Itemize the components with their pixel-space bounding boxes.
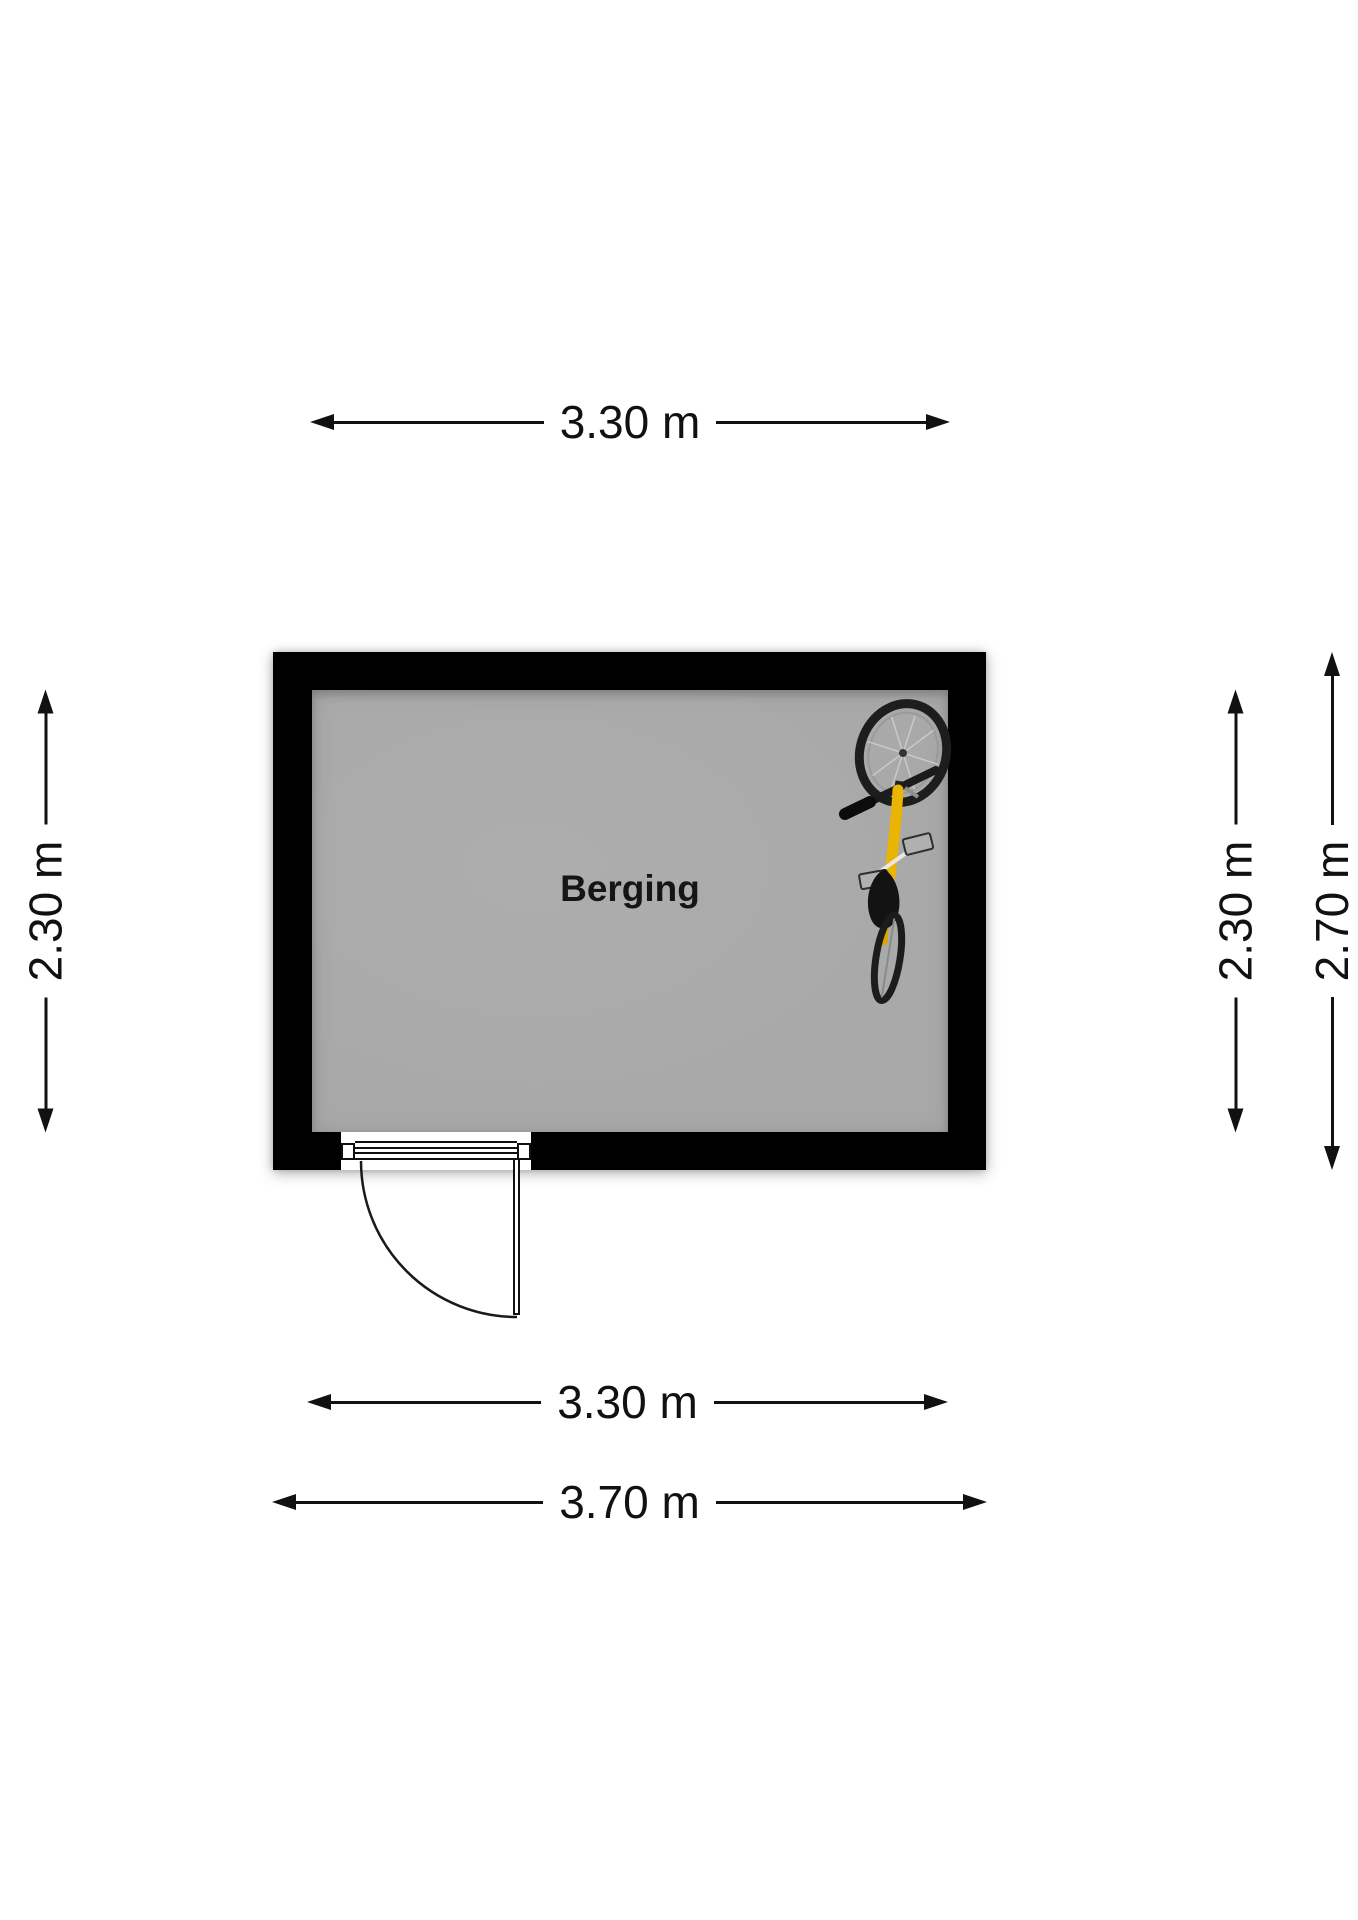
arrow-up-icon xyxy=(1324,652,1340,676)
dimension-line xyxy=(1234,710,1237,824)
arrow-right-icon xyxy=(926,414,950,430)
door-swing-arc xyxy=(361,1161,517,1317)
room-floor xyxy=(312,690,948,1132)
door-leaf xyxy=(513,1158,520,1315)
dimension-line xyxy=(1331,997,1334,1149)
dimension-label: 2.30 m xyxy=(23,825,69,998)
arrow-down-icon xyxy=(1324,1146,1340,1170)
dimension-line xyxy=(44,997,47,1111)
dimension-label: 2.30 m xyxy=(1213,825,1259,998)
dimension-label: 3.70 m xyxy=(543,1479,716,1525)
dimension-bottom-inner-width: 3.30 m xyxy=(307,1378,948,1426)
dimension-left-height: 2.30 m xyxy=(22,690,70,1133)
dimension-line xyxy=(331,421,544,424)
dimension-right-inner-height: 2.30 m xyxy=(1212,690,1260,1133)
dimension-label: 3.30 m xyxy=(541,1379,714,1425)
arrow-up-icon xyxy=(1228,689,1244,713)
dimension-line xyxy=(1331,673,1334,825)
room-label: Berging xyxy=(312,868,948,910)
dimension-right-outer-height: 2.70 m xyxy=(1308,652,1356,1170)
arrow-up-icon xyxy=(38,689,54,713)
door-threshold xyxy=(355,1141,517,1160)
dimension-line xyxy=(328,1401,541,1404)
dimension-line xyxy=(293,1501,543,1504)
arrow-down-icon xyxy=(38,1109,54,1133)
dimension-label: 3.30 m xyxy=(544,399,717,445)
floorplan-canvas: 3.30 m 2.30 m 2.30 m 2.70 m 3.30 m xyxy=(0,0,1358,1920)
dimension-line xyxy=(716,421,929,424)
dimension-top-width: 3.30 m xyxy=(310,398,950,446)
dimension-bottom-outer-width: 3.70 m xyxy=(272,1478,987,1526)
dimension-line xyxy=(44,710,47,824)
dimension-line xyxy=(714,1401,927,1404)
arrow-right-icon xyxy=(924,1394,948,1410)
door-jamb-left xyxy=(341,1143,355,1160)
dimension-line xyxy=(716,1501,966,1504)
arrow-down-icon xyxy=(1228,1109,1244,1133)
arrow-right-icon xyxy=(963,1494,987,1510)
dimension-line xyxy=(1234,997,1237,1111)
dimension-label: 2.70 m xyxy=(1309,825,1355,998)
